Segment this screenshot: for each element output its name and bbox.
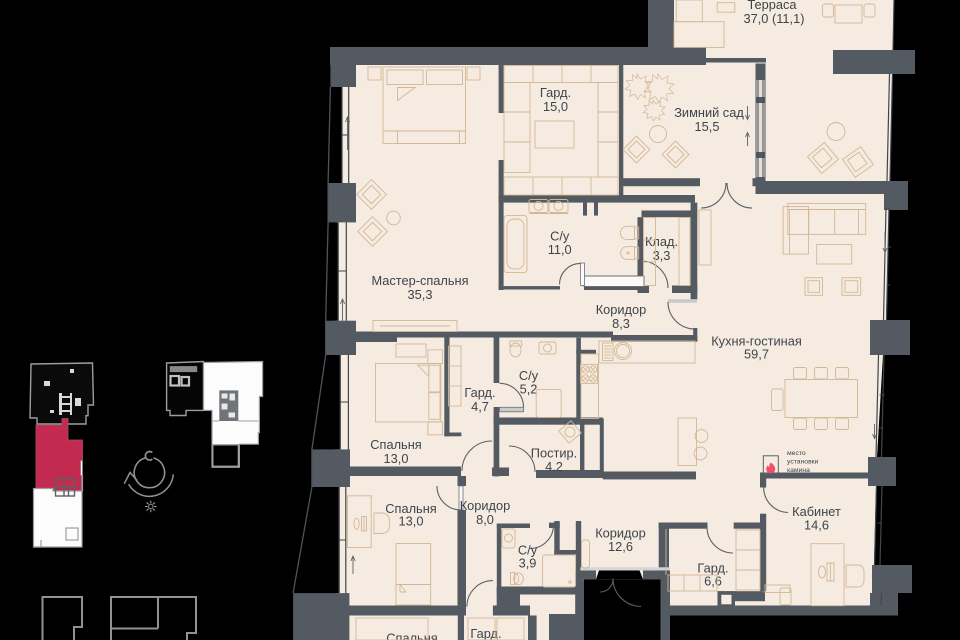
svg-text:15,5: 15,5 (695, 119, 720, 134)
svg-text:Коридор: Коридор (596, 302, 647, 317)
svg-text:15,0: 15,0 (543, 99, 568, 114)
svg-text:5,2: 5,2 (520, 382, 538, 397)
svg-text:Клад.: Клад. (645, 234, 678, 249)
svg-text:3,9: 3,9 (519, 556, 537, 571)
svg-text:Спальня: Спальня (386, 631, 437, 640)
svg-text:Мастер-спальня: Мастер-спальня (371, 273, 468, 288)
svg-text:Коридор: Коридор (460, 498, 511, 513)
svg-text:6,6: 6,6 (704, 574, 722, 589)
svg-text:установки: установки (787, 459, 819, 466)
svg-text:место: место (787, 450, 806, 457)
svg-text:Гард.: Гард. (464, 385, 495, 400)
svg-text:12,6: 12,6 (608, 539, 633, 554)
svg-text:Гард.: Гард. (540, 85, 571, 100)
svg-text:14,6: 14,6 (804, 518, 829, 533)
svg-text:35,3: 35,3 (408, 287, 433, 302)
svg-text:11,0: 11,0 (548, 242, 572, 257)
svg-text:59,7: 59,7 (744, 347, 769, 362)
svg-text:Спальня: Спальня (370, 437, 421, 452)
svg-text:8,0: 8,0 (476, 512, 494, 527)
svg-text:Зимний сад: Зимний сад (674, 105, 744, 120)
svg-text:37,0 (11,1): 37,0 (11,1) (744, 11, 805, 26)
svg-text:4,7: 4,7 (471, 399, 489, 414)
svg-text:8,3: 8,3 (612, 316, 630, 331)
svg-text:13,0: 13,0 (399, 514, 424, 529)
svg-text:4,2: 4,2 (545, 459, 563, 474)
svg-text:камина: камина (787, 467, 810, 474)
svg-text:13,0: 13,0 (384, 451, 409, 466)
